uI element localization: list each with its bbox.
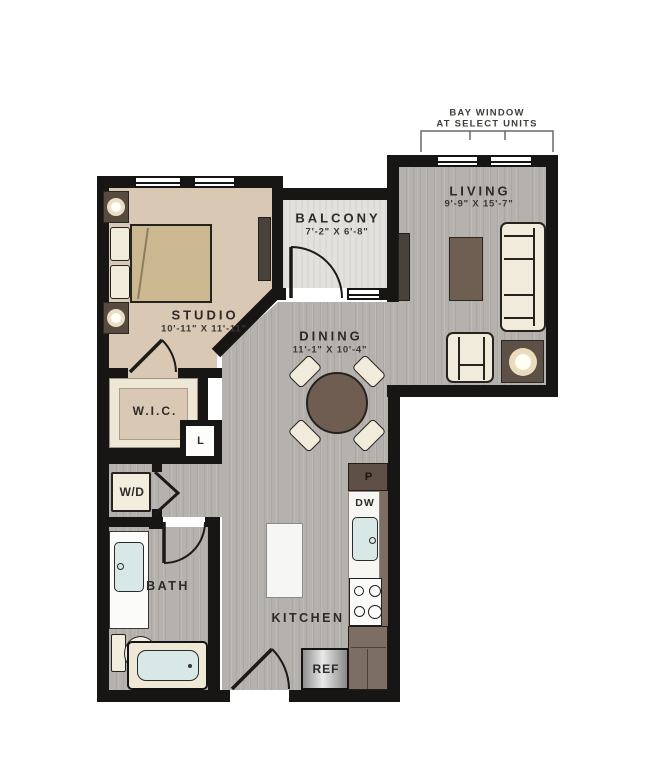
bay-window-note-line1: BAY WINDOW — [449, 108, 524, 119]
bay-window-bracket — [421, 131, 553, 152]
balcony-dims: 7'-2" X 6'-8" — [305, 227, 368, 238]
faucet-icon — [369, 537, 376, 544]
studio-window-1 — [134, 176, 182, 188]
sofa — [500, 222, 546, 332]
armchair — [446, 332, 494, 383]
dining-dims: 11'-1" X 10'-4" — [293, 345, 368, 356]
nightstand-bottom — [103, 302, 129, 334]
dining-label: DINING — [299, 329, 363, 344]
living-label: LIVING — [449, 184, 510, 199]
wall-bottom-right — [289, 690, 400, 702]
studio-label: STUDIO — [171, 308, 238, 323]
bath-label: BATH — [146, 579, 190, 593]
nightstand-top — [103, 191, 129, 223]
dishwasher-label: DW — [355, 497, 375, 509]
wall-bath-right — [208, 517, 220, 702]
wall-balcony-bottom-a — [272, 288, 286, 300]
refrigerator-label: REF — [313, 662, 340, 676]
wall-wic-right — [198, 368, 208, 420]
wall-linen-bottom — [180, 456, 222, 464]
kitchen-corner-counter — [348, 626, 388, 690]
bed — [107, 224, 212, 303]
tub-basin — [137, 650, 199, 681]
wall-balcony-bottom-b — [381, 288, 399, 300]
wic-label: W.I.C. — [133, 404, 178, 418]
bed-pillow-2 — [110, 265, 130, 299]
bed-duvet — [130, 224, 212, 303]
washer-dryer-label: W/D — [120, 485, 145, 499]
balcony-railing — [347, 288, 381, 300]
wall-wd-stub-bottom — [152, 509, 162, 517]
burner-icon — [354, 586, 364, 596]
balcony-label: BALCONY — [295, 211, 380, 226]
burner-icon — [368, 605, 382, 619]
floor-plan: BAY WINDOW AT SELECT UNITS LIVING 9'-9" … — [0, 0, 650, 757]
burner-icon — [354, 606, 365, 617]
living-tv-console — [398, 233, 410, 301]
bed-pillow-1 — [110, 227, 130, 261]
living-dims: 9'-9" X 15'-7" — [444, 199, 513, 210]
towel-bar — [149, 526, 163, 529]
hallway-floor — [162, 464, 222, 517]
wall-studio-top — [97, 176, 283, 188]
studio-door-gap-floor — [128, 368, 178, 378]
faucet-icon — [117, 563, 124, 570]
living-window-1 — [436, 155, 479, 167]
stove — [349, 578, 382, 626]
wall-wic-bottom — [97, 448, 186, 464]
wall-kitchen-right — [388, 385, 400, 702]
linen-closet-label: L — [197, 435, 205, 447]
wall-balcony-top — [272, 188, 399, 200]
wall-right — [546, 155, 558, 397]
bath-sink — [114, 542, 144, 592]
kitchen-island — [266, 523, 303, 598]
wall-living-bottom — [387, 385, 558, 397]
dining-table — [306, 372, 368, 434]
lamp-icon — [107, 198, 125, 216]
bay-window-note-line2: AT SELECT UNITS — [436, 119, 537, 130]
drain-icon — [188, 664, 192, 668]
lamp-icon — [107, 309, 125, 327]
studio-media-console — [258, 217, 271, 281]
kitchen-label: KITCHEN — [271, 611, 344, 625]
pantry-label: P — [365, 471, 373, 483]
burner-icon — [369, 585, 381, 597]
kitchen-sink — [352, 517, 378, 561]
wall-wd-stub-top — [152, 464, 162, 472]
studio-window-2 — [193, 176, 236, 188]
bathtub — [127, 641, 208, 690]
side-table — [501, 340, 544, 383]
wall-wic-top-a — [97, 368, 128, 378]
lamp-icon — [509, 348, 537, 376]
coffee-table — [449, 237, 483, 301]
living-window-2 — [489, 155, 533, 167]
studio-dims: 10'-11" X 11'-11" — [161, 324, 247, 335]
